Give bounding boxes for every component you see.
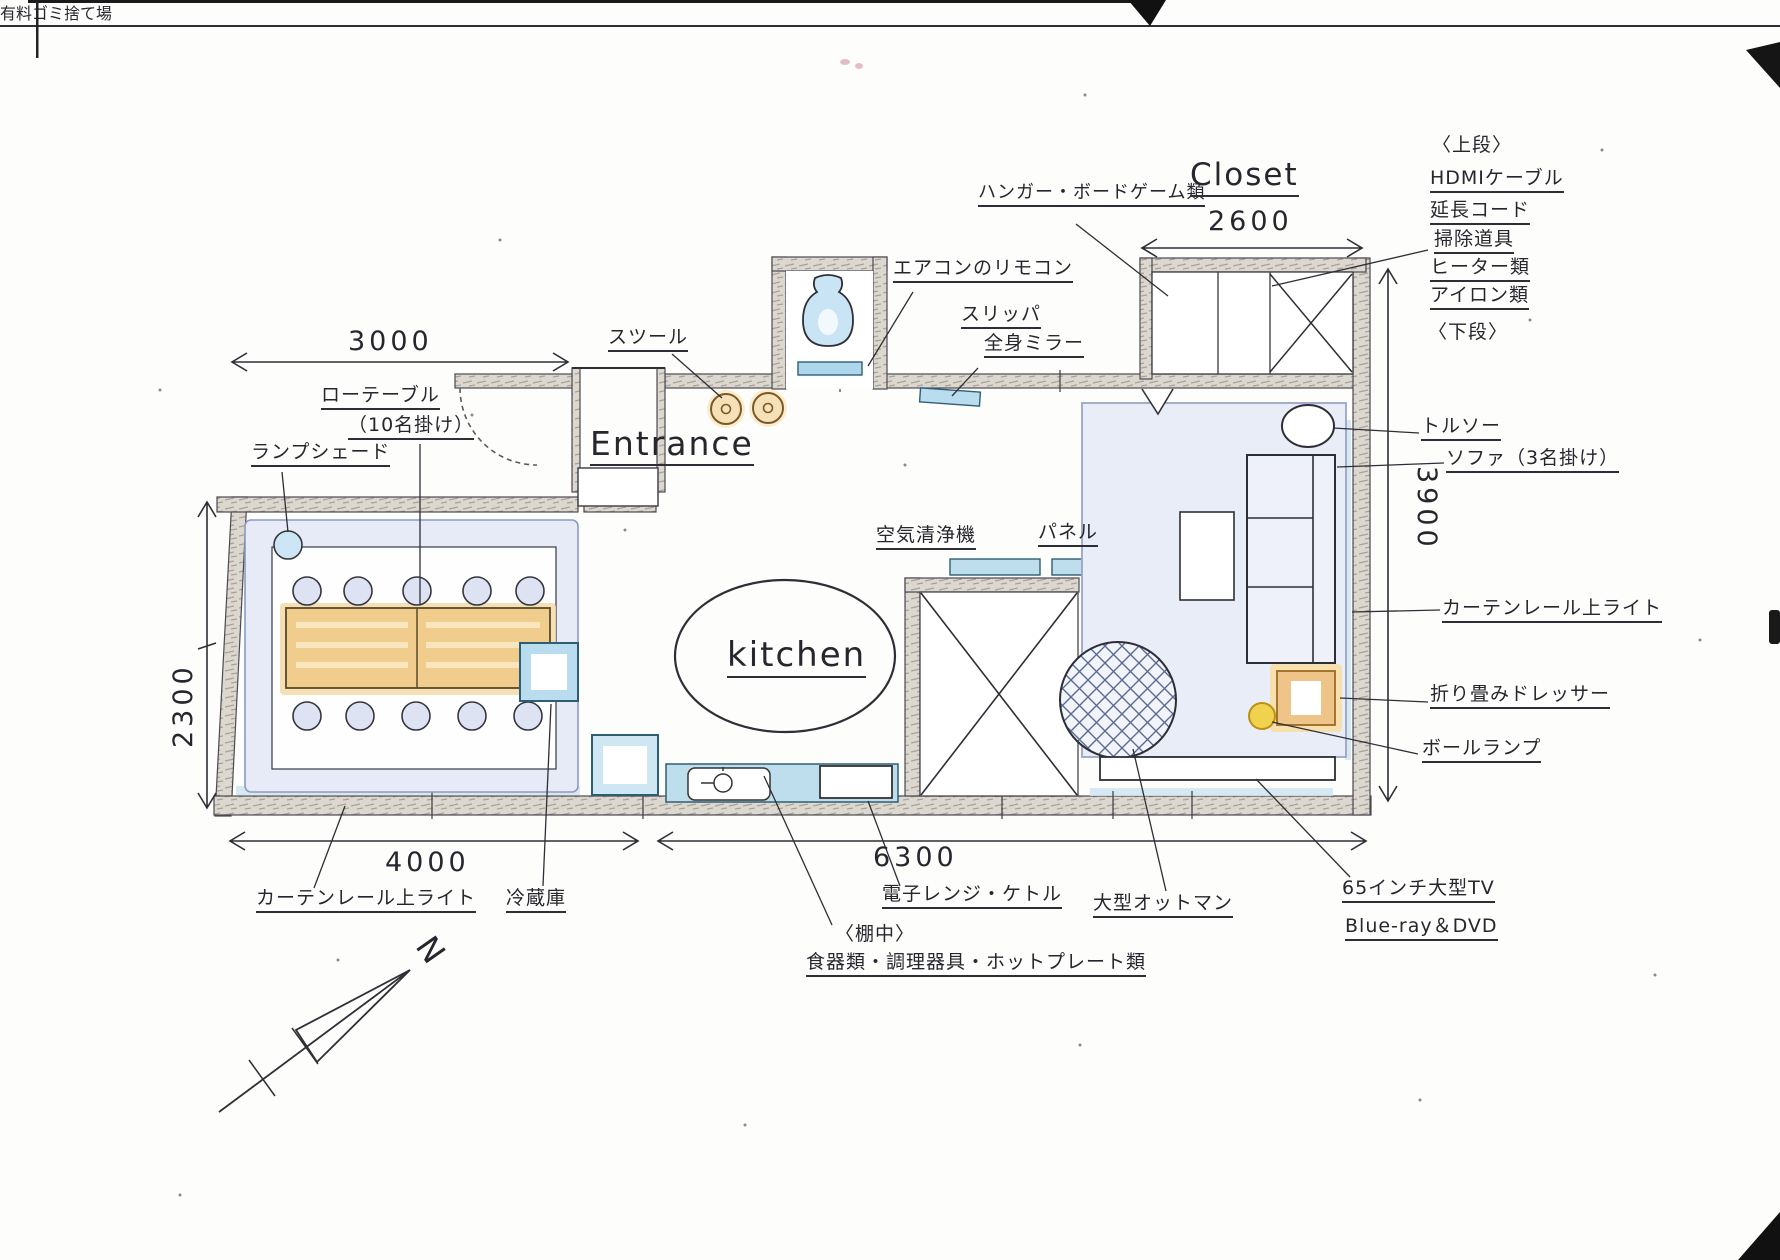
label-torso: トルソー: [1421, 416, 1501, 441]
wall-living-top: [886, 374, 1354, 388]
wall-dining-top: [217, 497, 578, 512]
alcove: [786, 271, 873, 389]
dining-area: [245, 520, 578, 792]
dim-bottom-right: 6300: [873, 842, 958, 873]
kitchen-title: kitchen: [727, 636, 866, 678]
wall-alcove-left: [772, 257, 786, 389]
label-hanger-boardgames: ハンガー・ボードゲーム類: [978, 183, 1205, 207]
dim-top-left: 3000: [348, 326, 433, 357]
wall-mid-top: [665, 374, 773, 388]
label-sofa: ソファ（3名掛け）: [1446, 448, 1619, 473]
label-lower-shelf-header: 〈下段〉: [1428, 322, 1508, 344]
label-ottoman: 大型オットマン: [1093, 893, 1233, 918]
floor-plan-scan: ハンガー・ボードゲーム類 Closet 2600 〈上段〉 HDMIケーブル 延…: [0, 0, 1780, 1260]
closet: [1152, 272, 1353, 374]
label-full-mirror: 全身ミラー: [984, 333, 1084, 358]
wall-corridor-top: [455, 374, 573, 388]
label-low-table-capacity: （10名掛け）: [348, 415, 474, 440]
side-table: [1180, 512, 1234, 600]
dim-3900-line: [1379, 269, 1397, 801]
north-arrow: [219, 970, 410, 1112]
folding-dresser: [1270, 664, 1342, 732]
label-panel: パネル: [1038, 522, 1098, 547]
label-bluray: Blue-ray＆DVD: [1345, 916, 1498, 941]
leader-curtain-left: [314, 806, 345, 888]
label-upper-shelf-header: 〈上段〉: [1432, 135, 1512, 157]
sink: [688, 767, 770, 800]
entrance-step: [578, 468, 658, 506]
label-slipper: スリッパ: [961, 304, 1041, 329]
label-hdmi-cable: HDMIケーブル: [1430, 168, 1564, 193]
label-heaters: ヒーター類: [1430, 257, 1530, 282]
label-lampshade: ランプシェード: [251, 442, 390, 467]
label-irons: アイロン類: [1430, 285, 1529, 310]
wall-shelfbox-left: [905, 578, 920, 796]
lamp-shade: [274, 531, 302, 559]
wall-alcove-right: [873, 257, 887, 389]
wall-shelfbox-top: [905, 578, 1079, 592]
kitchen-area: [592, 580, 898, 802]
label-extension-cord: 延長コード: [1430, 200, 1530, 225]
wall-closet-top: [1140, 258, 1366, 272]
dim-2300-line: [198, 502, 216, 808]
closet-title: Closet: [1190, 158, 1299, 197]
ottoman: [1060, 642, 1176, 758]
label-folding-dresser: 折り畳みドレッサー: [1430, 684, 1610, 709]
label-low-table: ローテーブル: [321, 385, 440, 410]
label-curtain-left: カーテンレール上ライト: [256, 888, 476, 913]
label-shelf-contents: 食器類・調理器具・ホットプレート類: [806, 952, 1146, 977]
label-curtain-right: カーテンレール上ライト: [1442, 598, 1662, 623]
microwave: [820, 766, 892, 798]
dim-6300-line: [658, 832, 1366, 850]
label-aircon-remote: エアコンのリモコン: [893, 258, 1073, 283]
dim-left: 2300: [168, 663, 199, 748]
entrance-title: Entrance: [590, 425, 754, 466]
wall-left: [215, 497, 247, 816]
dim-bottom-left: 4000: [385, 847, 470, 878]
label-air-purifier: 空気清浄機: [876, 525, 976, 550]
sofa: [1247, 455, 1335, 663]
wall-alcove-top: [772, 257, 887, 271]
label-shelf-header: 〈棚中〉: [835, 924, 915, 946]
ball-lamp-item: [1249, 703, 1275, 729]
counter-cabinet: [592, 735, 658, 795]
label-fridge: 冷蔵庫: [506, 888, 566, 913]
label-cleaning-tools: 掃除道具: [1434, 229, 1514, 254]
wall-right: [1353, 258, 1370, 815]
remote-shelf: [798, 362, 862, 375]
label-tv: 65インチ大型TV: [1342, 878, 1495, 903]
dim-right: 3900: [1411, 466, 1442, 551]
fridge: [520, 643, 578, 701]
label-microwave-kettle: 電子レンジ・ケトル: [882, 884, 1062, 909]
torso-mannequin: [1282, 405, 1334, 447]
label-stool: スツール: [608, 327, 688, 352]
label-ball-lamp: ボールランプ: [1422, 738, 1541, 763]
dim-2600-line: [1142, 239, 1362, 257]
dim-closet: 2600: [1208, 206, 1293, 237]
full-mirror: [920, 388, 981, 406]
air-purifier-item: [950, 559, 1040, 575]
